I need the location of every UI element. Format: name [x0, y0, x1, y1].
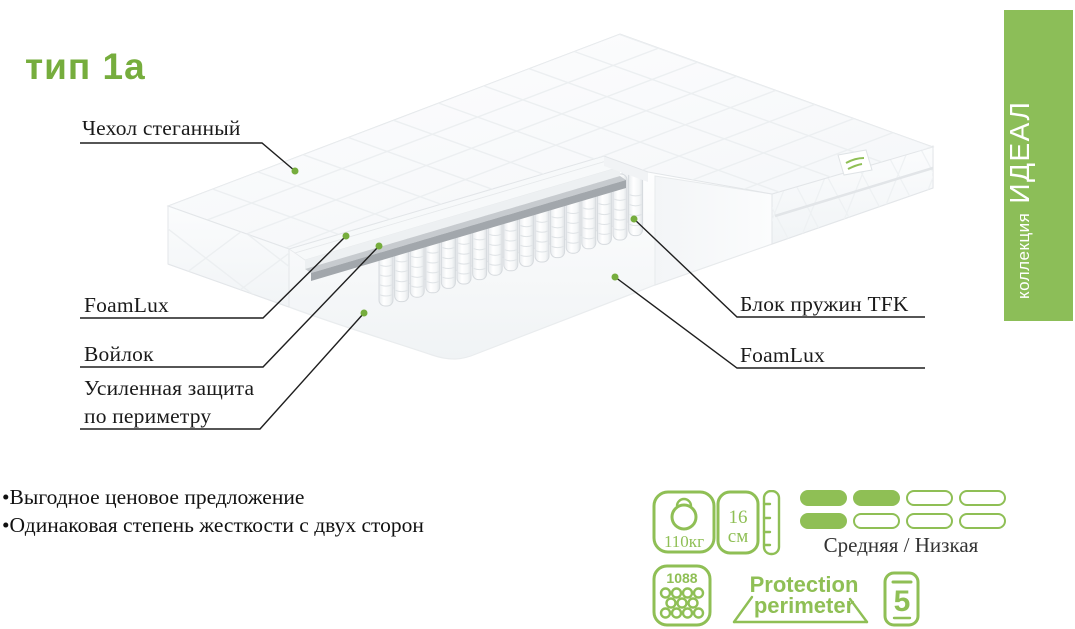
infographic-page: { "title": "тип 1а", "collection_banner"… [0, 0, 1075, 629]
perimeter-word: perimeter [754, 593, 855, 618]
collection-prefix: коллекция [1014, 213, 1034, 299]
firmness-bar-filled [800, 490, 847, 506]
callout-dot [292, 168, 299, 175]
callout-dot [343, 233, 350, 240]
feature-bullet-1: •Выгодное ценовое предложение [2, 483, 424, 511]
firmness-bar-empty [906, 513, 953, 529]
callout-dot [361, 310, 368, 317]
firmness-bar-filled [800, 513, 847, 529]
callout-dot [612, 274, 619, 281]
label-cover: Чехол стеганный [82, 114, 241, 142]
feature-bullets: •Выгодное ценовое предложение •Одинакова… [2, 483, 424, 539]
label-perimeter-line1: Усиленная защита [84, 374, 254, 402]
springs-count-value: 1088 [666, 570, 697, 586]
leader-cover [80, 143, 295, 171]
max-weight-value: 110кг [664, 532, 704, 551]
height-value: 16 [729, 507, 748, 528]
label-perimeter-line2: по периметру [84, 402, 254, 430]
label-foamlux-right: FoamLux [740, 341, 825, 369]
firmness-bar-filled [853, 490, 900, 506]
firmness-label: Средняя / Низкая [791, 533, 1011, 558]
firmness-bar-empty [959, 513, 1006, 529]
feature-bullet-2: •Одинаковая степень жесткости с двух сто… [2, 511, 424, 539]
kettlebell-max-weight-icon: 110кг [652, 490, 716, 554]
warranty-years-value: 5 [894, 585, 911, 618]
height-unit: см [728, 526, 748, 547]
firmness-bar-empty [959, 490, 1006, 506]
warranty-5-years-icon: 5 [882, 570, 922, 628]
core-cut-face [655, 176, 772, 285]
label-spring-block: Блок пружин TFK [740, 290, 909, 318]
callout-dot [376, 243, 383, 250]
collection-banner: коллекция ИДЕАЛ [1004, 10, 1073, 321]
quilt-line [916, 140, 1006, 310]
springs-count-icon: 1088 [652, 564, 712, 627]
brand-tag [838, 150, 872, 175]
firmness-bars [800, 490, 1006, 529]
label-perimeter: Усиленная защита по периметру [84, 374, 254, 430]
protection-perimeter-logo: Protection perimeter [726, 566, 876, 628]
firmness-bar-empty [906, 490, 953, 506]
collection-name: ИДЕАЛ [1004, 101, 1036, 204]
page-title: тип 1а [25, 46, 146, 88]
spring-dots [661, 589, 703, 618]
firmness-bar-empty [853, 513, 900, 529]
kettlebell-body [672, 505, 696, 529]
collection-banner-text: коллекция ИДЕАЛ [1004, 10, 1073, 321]
callout-dot [631, 216, 638, 223]
mattress-height-ruler-icon: 16 см [714, 490, 782, 556]
label-foamlux-left: FoamLux [84, 291, 169, 319]
label-felt: Войлок [84, 340, 154, 368]
